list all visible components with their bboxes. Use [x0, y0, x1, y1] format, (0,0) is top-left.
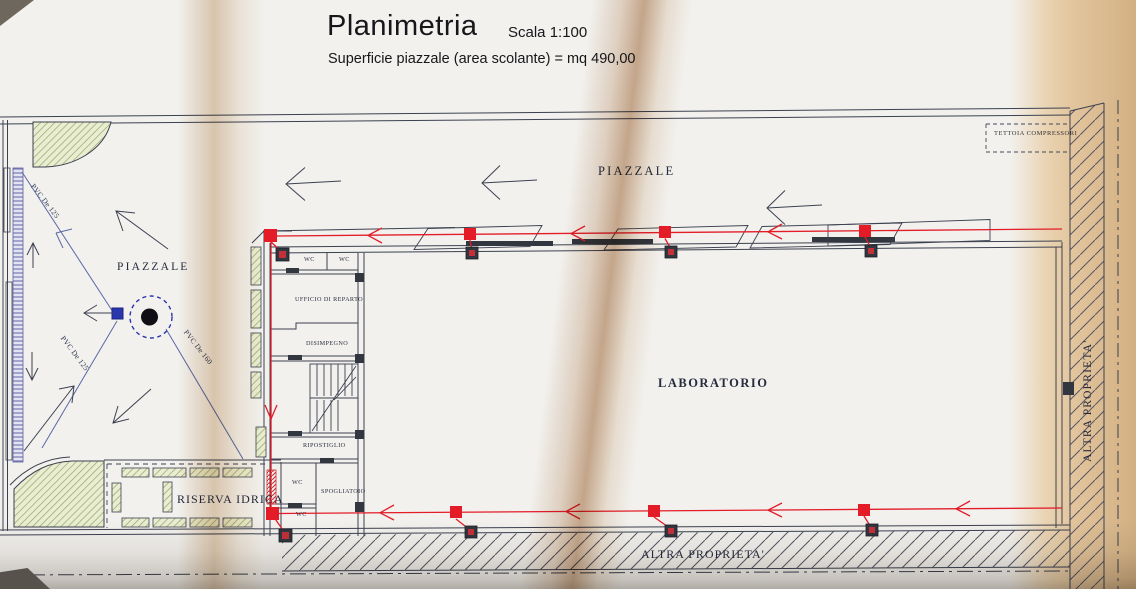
flow-arrow-left: [767, 191, 822, 225]
wall-pillars: [286, 237, 895, 512]
label-laboratorio: LABORATORIO: [658, 376, 769, 391]
label-room-wc-4: WC: [296, 511, 307, 518]
label-altra-proprieta-bottom: ALTRA PROPRIETA': [641, 547, 765, 562]
flow-arrow-down: [26, 352, 38, 380]
manhole-cover: [141, 309, 158, 326]
site-boundaries: [0, 100, 1118, 589]
label-piazzale-top: PIAZZALE: [598, 164, 675, 179]
downspout-boxes: [276, 245, 878, 542]
water-reserve-area: [10, 122, 281, 530]
compressor-canopy-outline: [986, 124, 1070, 152]
label-room-ufficio: UFFICIO DI REPARTO: [295, 296, 363, 303]
label-room-wc-2: WC: [339, 256, 350, 263]
staircase: [310, 364, 358, 433]
flow-arrows: [24, 166, 822, 452]
flow-arrow-left: [482, 166, 537, 200]
flow-arrow-up: [27, 243, 39, 268]
label-room-ripostiglio: RIPOSTIGLIO: [303, 442, 346, 449]
flow-arrow-upleft: [116, 211, 168, 249]
building-block: [252, 228, 1062, 537]
plan-subtitle: Superficie piazzale (area scolante) = mq…: [328, 51, 636, 67]
flow-arrow-left: [84, 305, 113, 321]
label-tettoia-compressori: TETTOIA COMPRESSORI: [994, 130, 1077, 137]
plan-drawing: [0, 0, 1136, 589]
plan-scale: Scala 1:100: [508, 24, 587, 41]
label-piazzale-left: PIAZZALE: [117, 261, 190, 273]
label-room-spogliatoio: SPOGLIATOIO: [321, 488, 366, 495]
label-riserva-idrica: RISERVA IDRICA: [177, 492, 284, 507]
flow-arrow-upright: [24, 386, 74, 451]
label-room-wc-1: WC: [304, 256, 315, 263]
label-altra-proprieta-right: ALTRA PROPRIETA': [1082, 340, 1094, 463]
wall-pillar: [1063, 382, 1074, 395]
plan-title: Planimetria: [327, 10, 478, 43]
label-room-wc-3: WC: [292, 479, 303, 486]
flow-arrow-left: [286, 168, 341, 201]
junction-box: [112, 308, 123, 319]
plan-photo: Planimetria Scala 1:100 Superficie piazz…: [0, 0, 1136, 589]
drain-junction: [112, 296, 172, 338]
gutter-nodes: [264, 225, 871, 520]
flow-arrow-downleft: [113, 389, 151, 423]
label-room-disimpegno: DISIMPEGNO: [306, 340, 348, 347]
green-corner-top: [33, 122, 111, 167]
channel-drain: [4, 168, 23, 462]
